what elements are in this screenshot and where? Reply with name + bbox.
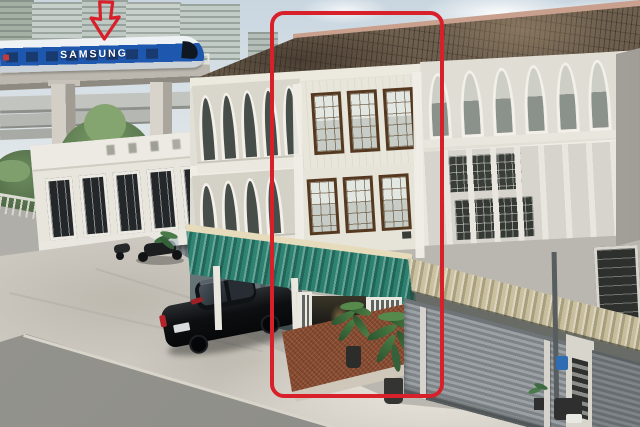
moto-wheel — [138, 252, 148, 262]
train-tail-emblem — [3, 54, 9, 60]
photo-shophouse-listing: SAMSUNG — [0, 0, 640, 427]
arcade-right-3f — [420, 52, 622, 148]
left-building-window — [113, 171, 145, 235]
small-plant — [528, 382, 550, 412]
sign-glyph — [172, 139, 181, 150]
small-palm — [152, 228, 182, 256]
arrow-annotation — [85, 0, 124, 43]
arrow-outline — [90, 2, 119, 40]
balusters-overlay — [418, 142, 623, 246]
colonnade-right-2f — [418, 142, 623, 246]
track-pillar — [150, 82, 172, 140]
train-brand-text: SAMSUNG — [34, 46, 154, 63]
scooter — [112, 240, 134, 260]
balcony-arch — [218, 92, 240, 162]
plant-pot — [534, 398, 544, 410]
roller-shutter-far-right — [592, 350, 640, 427]
white-bottles — [566, 414, 582, 423]
sign-glyph — [150, 141, 159, 152]
balcony-arch-mesh — [586, 59, 612, 131]
balcony-arch-mesh — [459, 70, 484, 138]
balcony-arch — [197, 95, 219, 164]
highlight-box-annotation — [270, 11, 444, 398]
balcony-arch — [238, 90, 260, 161]
balcony-arch — [241, 177, 262, 238]
tree-canopy — [0, 160, 30, 182]
left-building-window — [147, 168, 179, 232]
left-building-window — [45, 176, 77, 240]
balcony-arch-mesh — [490, 67, 516, 136]
balcony-arch-mesh — [554, 62, 580, 133]
sign-glyph — [128, 143, 137, 154]
scooter-wheel — [116, 252, 124, 260]
balcony-arch-mesh — [522, 64, 548, 134]
left-building-window — [79, 174, 111, 238]
sign-glyph — [106, 145, 115, 156]
train-windshield — [181, 41, 198, 59]
blue-bucket — [556, 356, 568, 370]
